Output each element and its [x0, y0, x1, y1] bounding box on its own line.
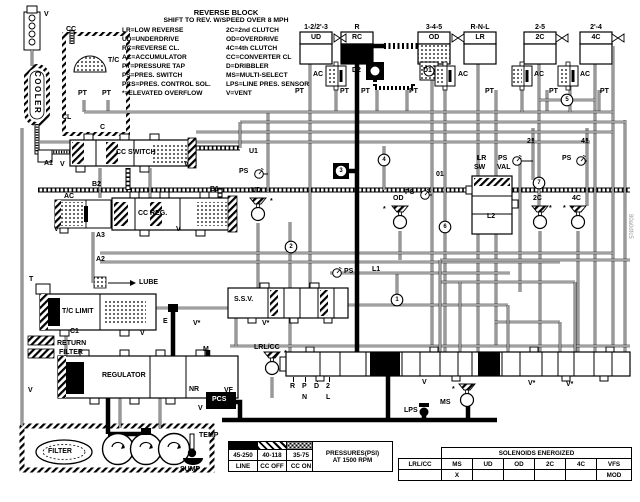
label-lr-sw-label2: SW — [474, 164, 485, 171]
label-star-4c: * — [563, 205, 566, 212]
legend-abbr-left: PS=PRES. SWITCH — [122, 71, 226, 80]
solenoid-state — [473, 470, 504, 481]
label-v-star-ssv-1: V* — [193, 320, 200, 327]
label-nr-valve: NR — [189, 386, 199, 393]
label-ac-ud: AC — [313, 71, 323, 78]
pressure-note-line2: AT 1500 RPM — [333, 457, 372, 464]
label-ps-41: PS — [562, 155, 571, 162]
solenoid-state — [504, 470, 535, 481]
label-cc-reg-valve: CC REG. — [138, 210, 167, 217]
solenoid-col: OD — [504, 459, 535, 470]
swatch-line — [229, 442, 258, 450]
label-ps-od: PS — [405, 189, 414, 196]
solenoid-state — [399, 470, 442, 481]
label-pt-tc-right: PT — [102, 90, 111, 97]
label-c1-port: C1 — [70, 328, 79, 335]
gear-label: 3-4-5 — [411, 24, 457, 31]
label-line-01: 01 — [436, 171, 444, 178]
legend-abbr-right: V=VENT — [226, 89, 252, 98]
label-pcs-solenoid: PCS — [212, 396, 226, 403]
label-manual-n: N — [302, 394, 307, 401]
label-pt-rc: PT — [361, 88, 370, 95]
legend-abbr-left: UD=UNDERDRIVE — [122, 35, 226, 44]
label-b2-port: B2 — [92, 181, 101, 188]
legend-abbr-left: PCS=PRES. CONTROL SOL. — [122, 80, 226, 89]
label-a2-port: A2 — [96, 256, 105, 263]
circled-number: 6 — [439, 224, 451, 230]
label-a3-port: A3 — [96, 232, 105, 239]
label-lr-cc-solenoid: LRL/CC — [254, 344, 280, 351]
circled-number: 3 — [335, 168, 347, 174]
label-sump: SUMP — [180, 466, 200, 473]
legend-abbr-right: OD=OVERDRIVE — [226, 35, 279, 44]
label-star-ud: * — [270, 198, 273, 205]
legend-abbr-left: LR=LOW REVERSE — [122, 26, 226, 35]
label-star-lrcc: * — [284, 350, 287, 357]
label-pt-2c: PT — [549, 88, 558, 95]
label-v-regulator: V — [28, 387, 33, 394]
label-vf-port: VF — [224, 387, 233, 394]
label-t-port: T — [29, 276, 33, 283]
label-cooler: COOLER — [33, 71, 41, 114]
label-ac-4c: AC — [580, 71, 590, 78]
legend-row: PT=PRESSURE TAPD=DRIBBLER — [118, 62, 334, 71]
label-ps-l1: PS — [344, 268, 353, 275]
gear-label: R-N-L — [457, 24, 503, 31]
legend-abbr-left: PT=PRESSURE TAP — [122, 62, 226, 71]
label-return-filter-line1: RETURN — [57, 340, 86, 347]
label-return-filter-line2: FILTER — [59, 349, 83, 356]
clutch-name-label: LR — [464, 34, 496, 41]
legend-row: PS=PRES. SWITCHMS=MULTI-SELECT — [118, 71, 334, 80]
solenoid-col: UD — [473, 459, 504, 470]
legend-abbr-right: 4C=4th CLUTCH — [226, 44, 277, 53]
label-manual-d: D — [314, 383, 319, 390]
label-d2-dribbler: D2 — [352, 67, 361, 74]
label-manual-p: P — [302, 383, 307, 390]
label-ac-ccreg: AC — [64, 193, 74, 200]
label-v-star-ssv-2: V* — [262, 320, 269, 327]
circled-number: 2 — [285, 244, 297, 250]
legend-abbr-right: D=DRIBBLER — [226, 62, 269, 71]
circled-number: 4 — [378, 157, 390, 163]
solenoid-state: X — [442, 470, 473, 481]
pressure-note: PRESSURES(PSI) AT 1500 RPM — [312, 441, 393, 472]
solenoid-state: MOD — [597, 470, 632, 481]
label-pt-od: PT — [409, 88, 418, 95]
solenoid-state — [566, 470, 597, 481]
label-lr-sw-label1: LR — [477, 155, 486, 162]
legend-row: AC=ACCUMULATORCC=CONVERTER CL — [118, 53, 334, 62]
solenoid-state — [535, 470, 566, 481]
label-4c-solenoid: 4C — [572, 195, 581, 202]
gear-label: R — [334, 24, 380, 31]
legend-block: REVERSE BLOCK SHIFT TO REV. W/SPEED OVER… — [118, 8, 334, 98]
label-ud-solenoid: UD — [251, 187, 261, 194]
label-v-manual: V — [422, 379, 427, 386]
legend-abbr-left: RC=REVERSE CL. — [122, 44, 226, 53]
label-lr-sw-label3: VAL — [497, 164, 510, 171]
label-pt-tc-left: PT — [78, 90, 87, 97]
label-manual-2: 2 — [326, 383, 330, 390]
label-ps-21: PS — [498, 155, 507, 162]
label-line-21: 21 — [527, 138, 535, 145]
label-ac-od: AC — [458, 71, 468, 78]
label-v-ccswitch-left: V — [60, 161, 65, 168]
label-cl-port: CL — [62, 114, 71, 121]
label-ms-solenoid: MS — [440, 399, 451, 406]
legend-abbr-left: *=ELEVATED OVERFLOW — [122, 89, 226, 98]
label-pt-ud-ac: PT — [340, 88, 349, 95]
label-2c-solenoid: 2C — [533, 195, 542, 202]
solenoid-col: 4C — [566, 459, 597, 470]
solenoid-table: SOLENOIDS ENERGIZED LRL/CC MS UD OD 2C 4… — [398, 447, 632, 481]
pressure-value: 45-250 — [229, 450, 258, 461]
label-a1-port: A1 — [44, 160, 53, 167]
label-pt-ud: PT — [295, 88, 304, 95]
label-filter: FILTER — [48, 448, 72, 455]
watermark: 80a0dfc5 — [627, 214, 633, 239]
pressure-value: 40-118 — [258, 450, 287, 461]
clutch-name-label: RC — [341, 34, 373, 41]
label-v-accum: V — [54, 226, 59, 233]
label-v-ccreg: V — [176, 226, 181, 233]
label-line-41: 41 — [581, 138, 589, 145]
legend-abbr-right: 2C=2nd CLUTCH — [226, 26, 279, 35]
label-v-star-right-1: V* — [528, 380, 535, 387]
gear-label: 1-2/2'-3 — [293, 24, 339, 31]
gear-label: 2'-4 — [573, 24, 619, 31]
legend-row: RC=REVERSE CL.4C=4th CLUTCH — [118, 44, 334, 53]
gear-label: 2-5 — [517, 24, 563, 31]
label-vent-top: V — [44, 11, 49, 18]
pressure-note-line1: PRESSURES(PSI) — [326, 450, 379, 457]
label-d1-dribbler: D1 — [423, 67, 432, 74]
label-l2-line: L2 — [487, 213, 495, 220]
label-torque-converter: T/C — [108, 57, 119, 64]
solenoid-col: 2C — [535, 459, 566, 470]
swatch-cc-off — [258, 442, 287, 450]
clutch-name-label: 2C — [524, 34, 556, 41]
label-cc-top: CC — [66, 26, 76, 33]
circled-number: 7 — [533, 180, 545, 186]
label-od-solenoid: OD — [393, 195, 404, 202]
solenoid-table-spacer — [399, 448, 442, 459]
label-star-ms: * — [452, 386, 455, 393]
label-star-od: * — [383, 206, 386, 213]
label-pt-lr: PT — [485, 88, 494, 95]
legend-abbr-right: MS=MULTI-SELECT — [226, 71, 288, 80]
label-manual-l: L — [326, 394, 330, 401]
diagram-subtitle: SHIFT TO REV. W/SPEED OVER 8 MPH — [118, 17, 334, 24]
clutch-name-label: OD — [418, 34, 450, 41]
diagram-title: REVERSE BLOCK — [118, 8, 334, 17]
solenoid-col: VFS — [597, 459, 632, 470]
label-tc-limit-valve: T/C LIMIT — [62, 308, 94, 315]
label-v-pcs: V — [198, 405, 203, 412]
legend-abbr-right: CC=CONVERTER CL — [226, 53, 291, 62]
label-m-port: M — [203, 346, 209, 353]
label-pt-4c: PT — [600, 88, 609, 95]
label-cc-switch-valve: CC SWITCH — [116, 149, 156, 156]
label-ps-ud: PS — [239, 168, 248, 175]
legend-abbr-left: AC=ACCUMULATOR — [122, 53, 226, 62]
clutch-name-label: UD — [300, 34, 332, 41]
label-b1-port: B1 — [210, 186, 219, 193]
label-v-tclimit: V — [140, 330, 145, 337]
schematic-page: { "legend": { "title": "REVERSE BLOCK", … — [0, 0, 640, 502]
label-u1-line: U1 — [249, 148, 258, 155]
label-l1-line: L1 — [372, 266, 380, 273]
pressure-legend-table: 45-250 40-118 35-75 LINE CC OFF CC ON — [228, 441, 316, 472]
label-ac-lr: AC — [534, 71, 544, 78]
label-lube-port: LUBE — [139, 279, 158, 286]
label-lps-sensor: LPS — [404, 407, 418, 414]
circled-number: 5 — [561, 97, 573, 103]
label-temp-sensor: TEMP — [199, 432, 218, 439]
solenoid-table-title: SOLENOIDS ENERGIZED — [442, 448, 632, 459]
label-c-port: C — [100, 124, 105, 131]
circled-number: 1 — [391, 297, 403, 303]
pressure-mode: CC OFF — [258, 461, 287, 472]
pressure-mode: LINE — [229, 461, 258, 472]
label-regulator-valve: REGULATOR — [102, 372, 146, 379]
label-e-port: E — [163, 318, 168, 325]
solenoid-col: MS — [442, 459, 473, 470]
clutch-name-label: 4C — [580, 34, 612, 41]
label-ssv-valve: S.S.V. — [234, 296, 253, 303]
label-star-2c: * — [549, 205, 552, 212]
label-v-star-right-2: V* — [566, 381, 573, 388]
label-v-ccswitch-right: V — [184, 161, 189, 168]
solenoid-col: LRL/CC — [399, 459, 442, 470]
label-manual-r: R — [290, 383, 295, 390]
